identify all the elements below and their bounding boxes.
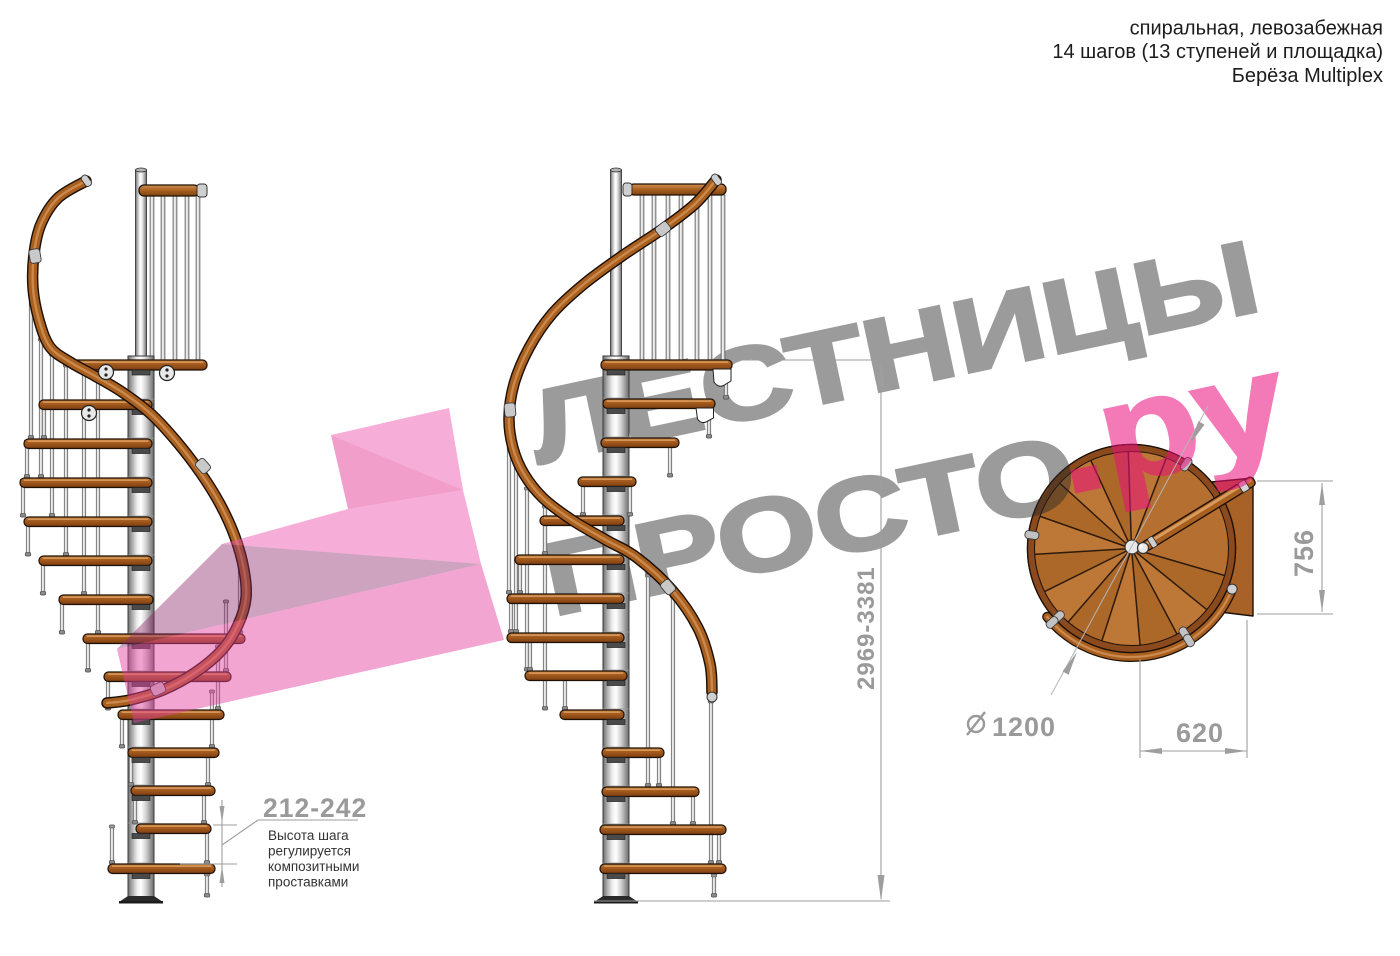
svg-text:2969-3381: 2969-3381 [853,566,880,690]
svg-text:756: 756 [1289,529,1319,577]
svg-text:1200: 1200 [992,712,1056,742]
svg-text:композитными: композитными [268,859,359,874]
svg-text:Высота шага: Высота шага [268,828,349,843]
svg-text:проставками: проставками [268,875,348,890]
svg-text:212-242: 212-242 [263,793,367,823]
svg-text:Берёза Multiplex: Берёза Multiplex [1232,65,1383,87]
svg-text:14 шагов (13 ступеней и площад: 14 шагов (13 ступеней и площадка) [1052,41,1383,63]
svg-text:спиральная, левозабежная: спиральная, левозабежная [1130,18,1383,40]
svg-text:620: 620 [1176,718,1224,748]
svg-text:регулируется: регулируется [268,844,351,859]
